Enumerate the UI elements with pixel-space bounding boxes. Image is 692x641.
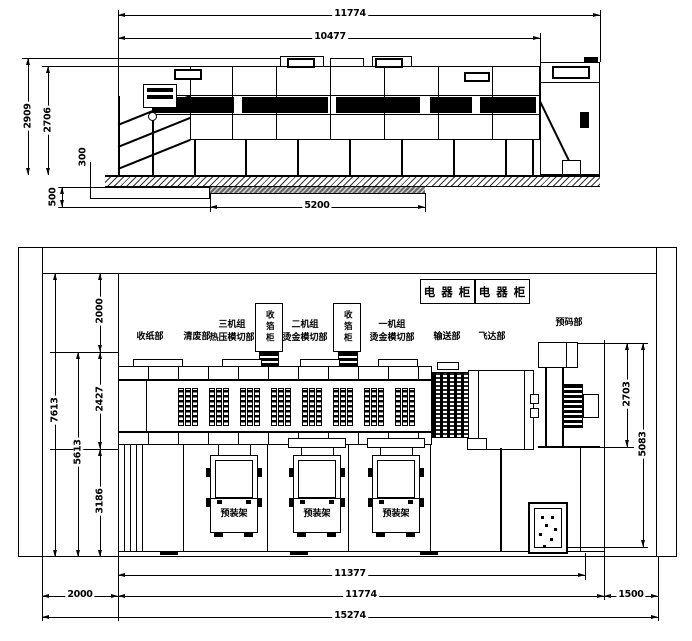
floor-hatch	[105, 175, 600, 187]
control-screen	[375, 58, 403, 68]
prestacker-unit	[538, 342, 578, 368]
dim-inner-length: 11377	[332, 569, 368, 579]
dim-machine-length: 11774	[343, 590, 379, 600]
machine-top-strip	[118, 366, 432, 380]
control-screen	[287, 58, 315, 68]
dim-machine-rack-depth: 5613	[73, 437, 83, 466]
dim-top-clearance: 2000	[95, 296, 105, 325]
label-conveyor: 输送部	[433, 332, 460, 343]
label-unit2-name: 二机组	[291, 320, 318, 331]
control-screen	[174, 69, 202, 80]
dim-line-pit-depth	[62, 187, 63, 207]
electrical-cabinet-2-label: 电 器 柜	[479, 284, 527, 300]
label-paper-delivery: 收纸部	[136, 332, 163, 343]
dim-total-depth: 7613	[50, 395, 60, 424]
console-knob	[148, 112, 157, 121]
rack-2-label: 预装架	[303, 509, 330, 520]
conveyor-section	[432, 372, 472, 438]
dim-total-length: 11774	[332, 9, 368, 19]
label-waste-stripping: 清废部	[183, 332, 210, 343]
label-feeder: 飞达部	[478, 332, 505, 343]
label-unit2-type: 烫金模切部	[282, 333, 327, 344]
electrical-cabinet-1-label: 电 器 柜	[424, 284, 472, 300]
dim-rack-depth: 3186	[95, 486, 105, 515]
electrical-cabinet-2: 电 器 柜	[475, 279, 530, 304]
foil-cabinet-2: 收箔柜	[333, 303, 361, 352]
rack-1-label: 预装架	[220, 509, 247, 520]
floor-pit	[90, 187, 210, 199]
control-screen	[464, 72, 490, 82]
control-screen	[552, 66, 590, 79]
label-unit1-type: 烫金模切部	[369, 333, 414, 344]
floor-pit-hatch	[210, 187, 425, 194]
electrical-cabinet-1: 电 器 柜	[420, 279, 475, 304]
dim-pit-length: 5200	[302, 201, 331, 211]
dim-left-clearance: 2000	[65, 590, 94, 600]
feed-rail	[118, 139, 191, 170]
dim-floor-step: 300	[78, 146, 88, 169]
machine-layout-drawing: 11774 10477 2909 2706	[0, 0, 692, 641]
foil-cabinet-2-connector	[338, 352, 358, 367]
dim-right-depth: 5083	[638, 429, 648, 458]
dim-machine-depth: 2427	[95, 384, 105, 413]
dim-body-height: 2706	[43, 105, 53, 134]
label-unit1-name: 一机组	[378, 320, 405, 331]
label-unit3-type: 热压模切部	[209, 333, 254, 344]
dim-prestacker-depth: 2703	[622, 379, 632, 408]
prestacker-pallet	[563, 384, 583, 428]
dim-total-length-plan: 15274	[332, 611, 368, 621]
foil-cabinet-1-label: 收箔柜	[265, 310, 274, 345]
dim-right-clearance: 1500	[616, 590, 645, 600]
delivery-step	[562, 160, 581, 175]
label-unit3-name: 三机组	[218, 320, 245, 331]
dim-body-length: 10477	[312, 32, 348, 42]
foil-cabinet-2-label: 收箔柜	[343, 310, 352, 345]
label-prestacker: 预码部	[555, 318, 582, 329]
dim-pit-depth: 500	[48, 186, 58, 209]
unit-cabin	[330, 58, 364, 67]
foil-cabinet-1-connector	[259, 352, 279, 367]
rack-3-label: 预装架	[382, 509, 409, 520]
dim-overall-height: 2909	[23, 101, 33, 130]
foil-cabinet-1: 收箔柜	[255, 303, 283, 352]
